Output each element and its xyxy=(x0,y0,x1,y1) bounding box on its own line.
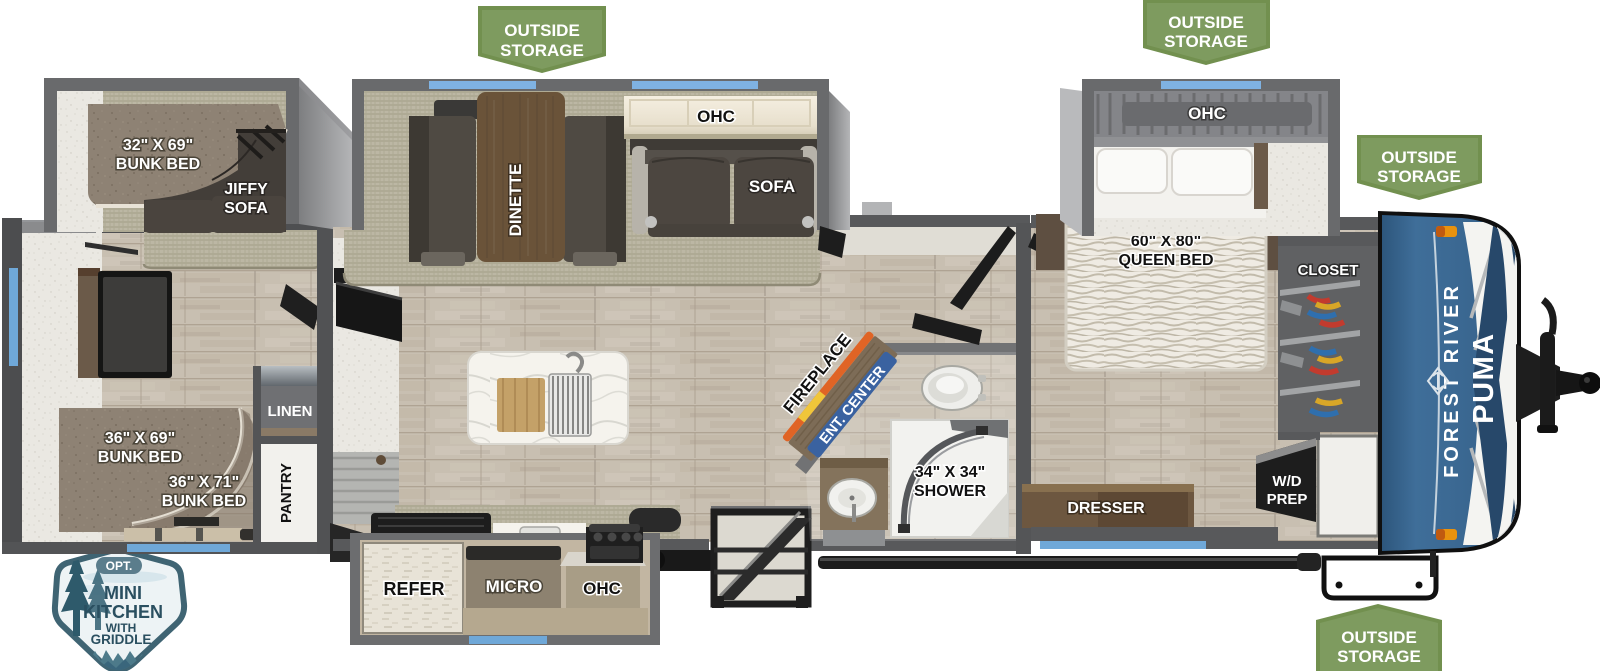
svg-text:STORAGE: STORAGE xyxy=(1164,32,1248,51)
svg-text:BUNK BED: BUNK BED xyxy=(162,493,246,510)
svg-text:OHC: OHC xyxy=(697,107,735,126)
svg-text:BUNK BED: BUNK BED xyxy=(98,449,182,466)
svg-text:STORAGE: STORAGE xyxy=(1337,647,1421,666)
svg-text:OPT.: OPT. xyxy=(106,559,133,573)
svg-text:BUNK BED: BUNK BED xyxy=(116,156,200,173)
svg-text:PREP: PREP xyxy=(1267,491,1308,508)
svg-text:SOFA: SOFA xyxy=(224,200,268,217)
svg-text:MINI: MINI xyxy=(104,583,142,603)
svg-text:32" X 69": 32" X 69" xyxy=(123,137,193,154)
svg-text:OHC: OHC xyxy=(583,579,621,598)
svg-text:DRESSER: DRESSER xyxy=(1067,500,1145,517)
svg-text:SHOWER: SHOWER xyxy=(914,483,986,500)
svg-text:PANTRY: PANTRY xyxy=(278,463,295,523)
svg-text:36" X 69": 36" X 69" xyxy=(105,430,175,447)
svg-text:OUTSIDE: OUTSIDE xyxy=(1341,628,1417,647)
svg-text:W/D: W/D xyxy=(1272,473,1301,490)
svg-text:FOREST RIVER: FOREST RIVER xyxy=(1441,282,1463,478)
svg-text:REFER: REFER xyxy=(383,579,444,599)
svg-text:OUTSIDE: OUTSIDE xyxy=(1168,13,1244,32)
svg-text:MICRO: MICRO xyxy=(486,577,543,596)
svg-text:OHC: OHC xyxy=(1188,104,1226,123)
svg-text:KITCHEN: KITCHEN xyxy=(83,602,163,622)
svg-text:GRIDDLE: GRIDDLE xyxy=(91,632,152,647)
svg-text:PUMA: PUMA xyxy=(1468,332,1500,423)
svg-text:36" X 71": 36" X 71" xyxy=(169,474,239,491)
svg-text:CLOSET: CLOSET xyxy=(1298,262,1359,279)
svg-text:LINEN: LINEN xyxy=(268,403,313,420)
svg-text:OUTSIDE: OUTSIDE xyxy=(504,21,580,40)
svg-text:OUTSIDE: OUTSIDE xyxy=(1381,148,1457,167)
svg-text:QUEEN BED: QUEEN BED xyxy=(1118,252,1213,269)
svg-text:SOFA: SOFA xyxy=(749,177,795,196)
svg-text:34" X 34": 34" X 34" xyxy=(915,464,985,481)
svg-text:JIFFY: JIFFY xyxy=(224,181,268,198)
svg-text:DINETTE: DINETTE xyxy=(506,164,525,237)
svg-text:STORAGE: STORAGE xyxy=(500,41,584,60)
svg-text:STORAGE: STORAGE xyxy=(1377,167,1461,186)
